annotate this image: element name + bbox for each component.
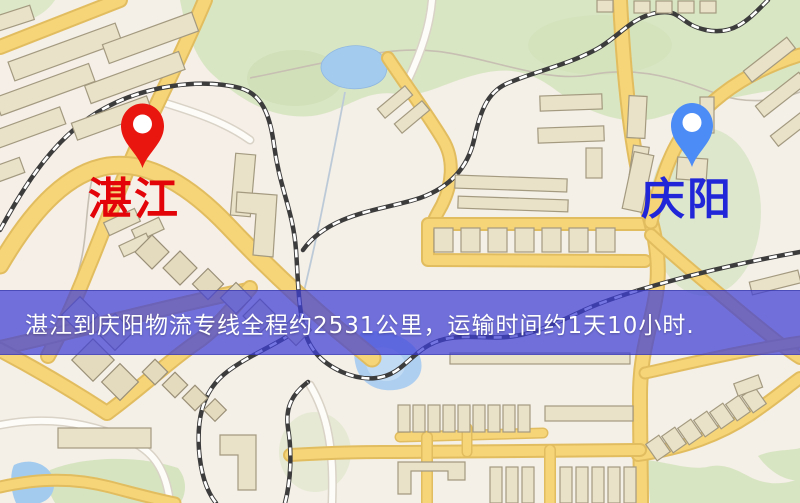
origin-pin-hole xyxy=(133,115,152,134)
destination-city-label: 庆阳 xyxy=(641,178,733,222)
lake xyxy=(321,46,387,89)
origin-city-label: 湛江 xyxy=(88,178,180,222)
route-info-banner: 湛江到庆阳物流专线全程约2531公里，运输时间约1天10小时. xyxy=(0,290,800,355)
map-image xyxy=(0,0,800,503)
route-info-text: 湛江到庆阳物流专线全程约2531公里，运输时间约1天10小时. xyxy=(0,306,695,340)
logistics-route-map: 湛江 庆阳 湛江到庆阳物流专线全程约2531公里，运输时间约1天10小时. xyxy=(0,0,800,503)
destination-pin-hole xyxy=(683,113,702,132)
